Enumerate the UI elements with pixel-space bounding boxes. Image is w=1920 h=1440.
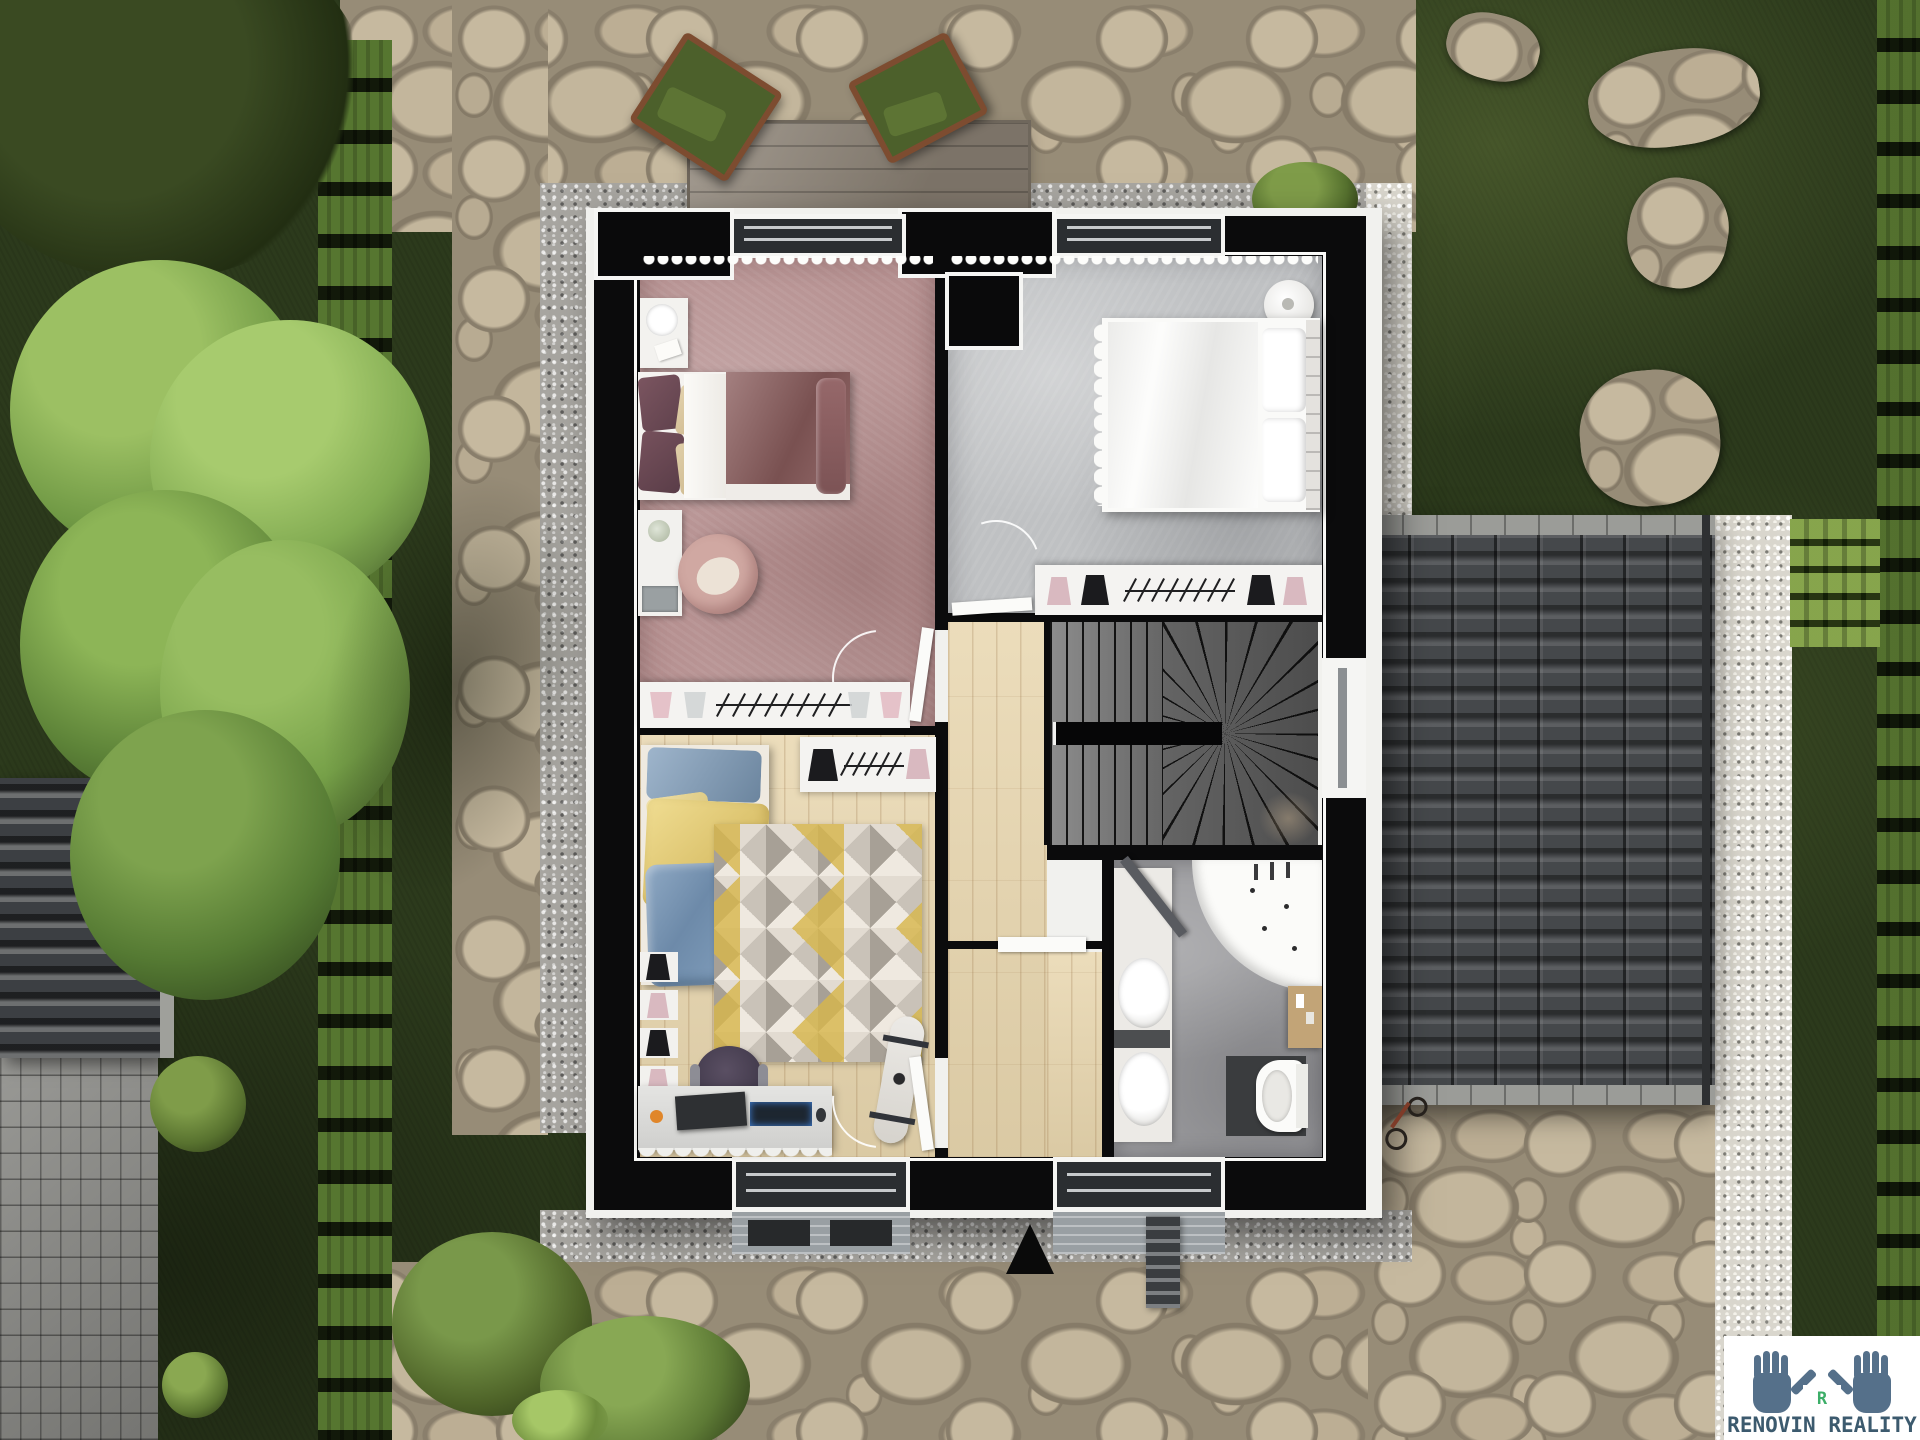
logo-initial: R: [1817, 1389, 1827, 1409]
window-rail: [1067, 1173, 1212, 1176]
window-glass: [1057, 219, 1221, 253]
card: [654, 339, 682, 362]
logo-house-body: R: [1803, 1385, 1841, 1413]
bath-sink: [1118, 1052, 1170, 1126]
gravel-strip-far-right: [1715, 515, 1792, 1440]
window-gray-bedroom: [1053, 214, 1225, 258]
window-glass: [736, 1162, 906, 1207]
bath-sink: [1118, 958, 1170, 1028]
desk-accessory-orange: [650, 1110, 663, 1123]
window-glass: [1057, 1162, 1221, 1207]
logo-text: RENOVIN REALITY: [1727, 1415, 1917, 1436]
double-bed-white: [1102, 318, 1320, 512]
toilet-tank: [1296, 1064, 1308, 1128]
wall-bath-left: [1102, 860, 1114, 1157]
window-box-planter: [732, 1212, 910, 1254]
tub-jet: [1284, 904, 1289, 909]
bag-pink: [1283, 577, 1307, 605]
desk: [638, 1086, 832, 1150]
staircase: [1050, 622, 1318, 845]
duvet-side-pillow: [816, 378, 846, 494]
bath-towel: [1114, 1030, 1170, 1048]
ladder: [1146, 1216, 1180, 1308]
wall-divider-lowstub: [935, 1148, 948, 1157]
storage-box-pink: [648, 692, 674, 718]
bag-black: [1081, 575, 1109, 605]
logo-right-hand: [1853, 1373, 1891, 1413]
wall-left: [594, 216, 640, 1210]
window-rail: [746, 1189, 896, 1192]
bag-black: [646, 1030, 670, 1056]
window-glass: [734, 219, 902, 253]
logo-left-hand: [1753, 1373, 1791, 1413]
window-pink-bedroom: [730, 214, 906, 258]
deck-chair-cushion: [655, 85, 727, 143]
bag-black: [808, 749, 838, 781]
toilet-seat: [1262, 1070, 1292, 1122]
tub-jet: [1292, 946, 1297, 951]
toiletry-bottle: [1306, 1012, 1314, 1024]
desk-scallop-edge: [638, 1148, 832, 1158]
cobblestone-pavers: [0, 1050, 158, 1440]
wall-shelf: [640, 1028, 678, 1058]
tub-jet: [1250, 888, 1255, 893]
table-lamp: [1282, 298, 1294, 310]
hallway-lower-floor: [1047, 952, 1102, 1157]
deck-chair-cushion: [882, 91, 948, 138]
toilet: [1256, 1060, 1304, 1132]
hedge-row-right: [1877, 0, 1920, 1440]
garage-roof-edge: [1702, 515, 1710, 1105]
door-leaf-hall-lower: [998, 937, 1086, 952]
window-rail: [1067, 238, 1212, 241]
stone-drive-right: [1368, 1105, 1716, 1440]
bush: [162, 1352, 228, 1418]
garage-roof: [1368, 515, 1715, 1105]
pillow-white: [1262, 418, 1306, 502]
storage-box-gray: [682, 692, 708, 718]
logo: R RENOVIN REALITY: [1724, 1336, 1920, 1440]
curtain-frill-gray: [950, 256, 1318, 270]
wall-stairs-left: [1044, 622, 1050, 845]
window-kids-room: [732, 1157, 910, 1212]
planter: [748, 1220, 810, 1246]
dresser-cabinet: [638, 510, 682, 616]
window-rail: [1067, 226, 1212, 229]
toiletry-bottle: [1296, 994, 1304, 1008]
tub-faucet: [1270, 862, 1274, 880]
wall-stairs-bath: [1047, 845, 1322, 860]
laptop: [642, 586, 678, 612]
bath-shelf-unit: [1288, 986, 1322, 1048]
stairwell-void: [1053, 722, 1222, 745]
window-rail: [1067, 1189, 1212, 1192]
window-glazing-bar: [1338, 668, 1347, 788]
mouse: [816, 1108, 826, 1122]
double-bed: [638, 372, 850, 500]
keyboard-rgb: [750, 1102, 812, 1126]
tricycle-frame: [1390, 1102, 1410, 1129]
wardrobe-gray-room: [1035, 565, 1322, 615]
armchair-cushion: [690, 550, 745, 601]
planter: [830, 1220, 892, 1246]
hallway-floor: [948, 622, 1047, 1157]
nightstand: [640, 298, 688, 368]
window-rail: [744, 238, 892, 241]
duvet-folds: [1108, 322, 1258, 508]
bag-pink: [906, 749, 930, 779]
window-hall-bath: [1053, 1157, 1225, 1212]
flower-vase: [648, 520, 670, 542]
wall-divider-mid: [935, 722, 948, 1058]
bag-pink: [647, 993, 669, 1018]
tub-jet: [1262, 926, 1267, 931]
hedge-block-right: [1790, 519, 1880, 647]
window-box: [1053, 1212, 1225, 1254]
bed-sheet-band: [684, 374, 730, 498]
bush: [150, 1056, 246, 1152]
window-stairs-narrow: [1322, 658, 1366, 798]
logo-hands-house-icon: R: [1747, 1351, 1897, 1415]
window-rail: [744, 226, 892, 229]
jewelry-tray: [646, 304, 678, 336]
tub-faucet: [1254, 864, 1258, 880]
pillow-white: [1262, 328, 1306, 412]
window-rail: [746, 1173, 896, 1176]
curtain-frill-pink: [642, 256, 933, 270]
wall-shelf: [640, 952, 678, 982]
floorplan-render: R RENOVIN REALITY: [0, 0, 1920, 1440]
bag-black: [1247, 575, 1275, 605]
wardrobe-kids: [800, 737, 936, 792]
headboard-tufted: [1306, 320, 1320, 510]
chimney-shaft: [945, 272, 1023, 350]
round-armchair: [678, 534, 758, 614]
bag-black: [646, 954, 670, 980]
tub-faucet: [1286, 862, 1290, 878]
wall-bottom: [594, 1157, 1366, 1210]
bag-pink: [1047, 577, 1071, 605]
wall-shelf: [640, 990, 678, 1020]
north-arrow: [1006, 1224, 1054, 1274]
monitor: [675, 1092, 747, 1131]
garage-roof-gutter-top: [1368, 515, 1715, 535]
